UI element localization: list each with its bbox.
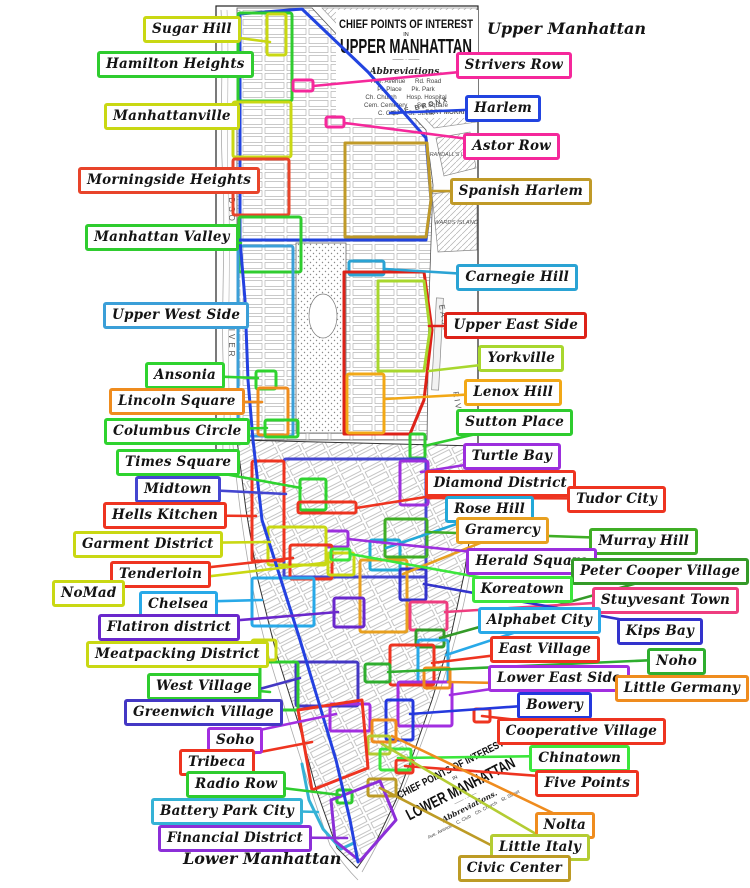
label-bowery: Bowery xyxy=(517,692,592,719)
label-hells-kitchen: Hells Kitchen xyxy=(103,502,227,529)
label-murray-hill: Murray Hill xyxy=(589,528,698,555)
label-tudor-city: Tudor City xyxy=(567,486,666,513)
label-west-village: West Village xyxy=(147,673,261,700)
label-greenwich-village: Greenwich Village xyxy=(124,699,283,726)
label-strivers-row: Strivers Row xyxy=(456,52,572,79)
label-upper-east-side: Upper East Side xyxy=(444,312,587,339)
label-east-village: East Village xyxy=(490,636,600,663)
label-midtown: Midtown xyxy=(135,476,221,503)
label-garment-district: Garment District xyxy=(73,531,223,558)
label-diamond-district: Diamond District xyxy=(425,470,576,497)
label-sugar-hill: Sugar Hill xyxy=(143,16,241,43)
label-gramercy: Gramercy xyxy=(456,517,549,544)
label-turtle-bay: Turtle Bay xyxy=(463,443,561,470)
label-carnegie-hill: Carnegie Hill xyxy=(456,264,578,291)
label-upper-west-side: Upper West Side xyxy=(103,302,249,329)
upper-manhattan-caption: Upper Manhattan xyxy=(487,19,646,38)
label-civic-center: Civic Center xyxy=(458,855,571,882)
label-ansonia: Ansonia xyxy=(145,362,225,389)
label-alphabet-city: Alphabet City xyxy=(478,607,601,634)
label-layer: Sugar HillHamilton HeightsManhattanville… xyxy=(0,0,750,888)
label-stuyvesant-town: Stuyvesant Town xyxy=(592,587,739,614)
lower-manhattan-caption: Lower Manhattan xyxy=(183,849,341,868)
label-lenox-hill: Lenox Hill xyxy=(464,379,562,406)
label-harlem: Harlem xyxy=(465,95,541,122)
label-times-square: Times Square xyxy=(116,449,240,476)
label-astor-row: Astor Row xyxy=(463,133,560,160)
label-kips-bay: Kips Bay xyxy=(617,618,703,645)
label-spanish-harlem: Spanish Harlem xyxy=(450,178,592,205)
label-battery-park-city: Battery Park City xyxy=(151,798,303,825)
label-five-points: Five Points xyxy=(535,770,639,797)
label-cooperative-village: Cooperative Village xyxy=(497,718,666,745)
label-yorkville: Yorkville xyxy=(478,345,564,372)
label-radio-row: Radio Row xyxy=(186,771,286,798)
label-meatpacking-district: Meatpacking District xyxy=(86,641,269,668)
label-tenderloin: Tenderloin xyxy=(110,561,211,588)
label-manhattanville: Manhattanville xyxy=(104,103,240,130)
label-columbus-circle: Columbus Circle xyxy=(104,418,250,445)
annotated-manhattan-map: CHIEF POINTS OF INTEREST IN UPPER MANHAT… xyxy=(0,0,750,888)
label-chinatown: Chinatown xyxy=(529,745,630,772)
label-lower-east-side: Lower East Side xyxy=(488,665,630,692)
label-little-germany: Little Germany xyxy=(615,675,749,702)
label-lincoln-square: Lincoln Square xyxy=(109,388,245,415)
label-flatiron-district: Flatiron district xyxy=(98,614,240,641)
label-noho: Noho xyxy=(647,648,706,675)
label-nomad: NoMad xyxy=(52,580,125,607)
label-manhattan-valley: Manhattan Valley xyxy=(85,224,239,251)
label-morningside-heights: Morningside Heights xyxy=(78,167,260,194)
label-peter-cooper-village: Peter Cooper Village xyxy=(571,558,749,585)
label-financial-district: Financial District xyxy=(158,825,312,852)
label-koreatown: Koreatown xyxy=(472,576,573,603)
label-hamilton-heights: Hamilton Heights xyxy=(97,51,254,78)
label-sutton-place: Sutton Place xyxy=(456,409,573,436)
